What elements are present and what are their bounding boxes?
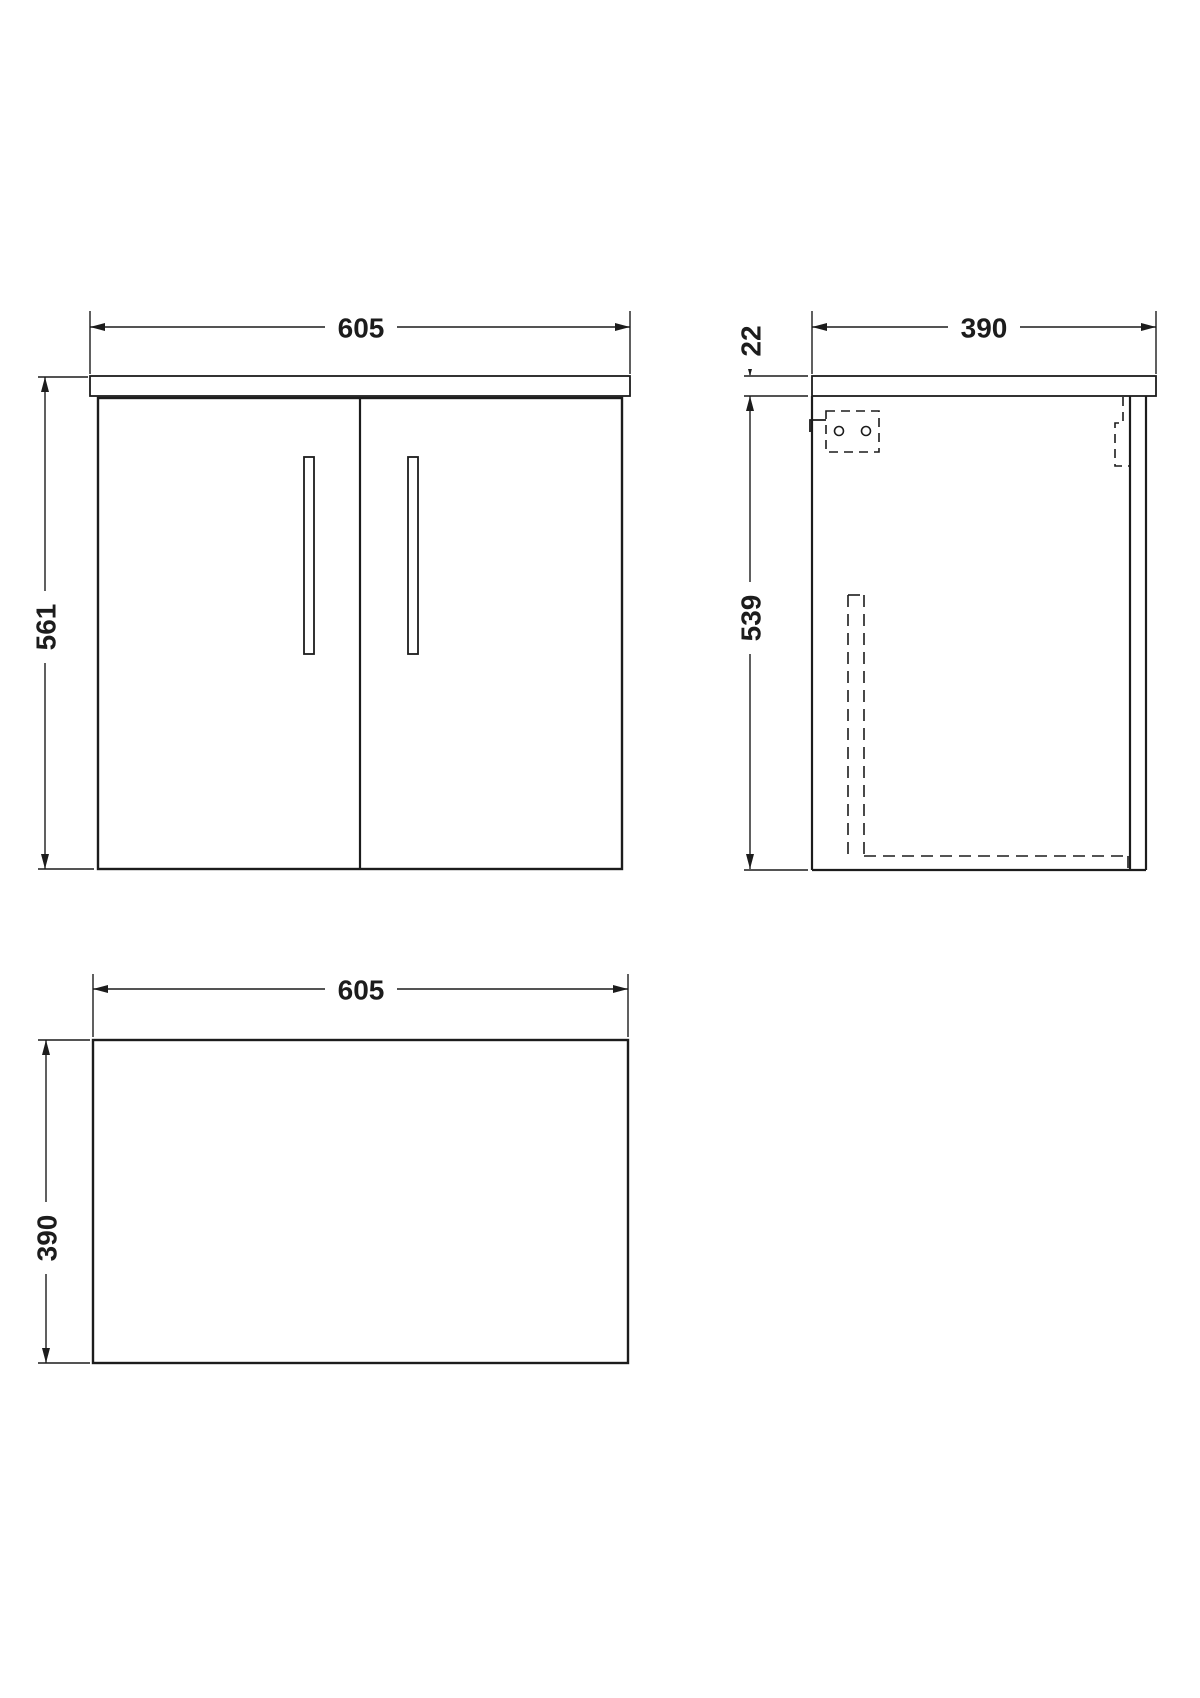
arrowhead-left [90, 323, 105, 331]
wall-mounting-bracket [810, 411, 879, 452]
hidden-internal-panel [848, 595, 1128, 868]
right-door-handle [408, 457, 418, 654]
front-worktop [90, 376, 630, 396]
bracket-screw-hole [835, 427, 844, 436]
side-depth-dimension: 390 [812, 311, 1156, 374]
plan-view: 605 390 [31, 974, 628, 1363]
arrowhead-up [746, 396, 754, 411]
arrowhead-down [42, 1348, 50, 1363]
worktop-thickness-label: 22 [736, 325, 767, 356]
arrowhead-left [93, 985, 108, 993]
plan-depth-label: 390 [32, 1215, 63, 1262]
arrowhead-right [613, 985, 628, 993]
plan-depth-dimension: 390 [31, 1040, 90, 1363]
arrowhead-left [812, 323, 827, 331]
rotated-label-group: 561 [30, 591, 62, 663]
rotated-label-group: 22 [735, 313, 767, 369]
worktop-thickness-dimension: 22 [735, 313, 808, 396]
plan-width-dimension: 605 [93, 974, 628, 1037]
technical-drawing-canvas: 605 561 390 [0, 0, 1200, 1698]
arrowhead-right [615, 323, 630, 331]
rotated-label-group: 539 [735, 582, 767, 654]
arrowhead-up [41, 377, 49, 392]
plan-width-label: 605 [338, 975, 385, 1006]
side-height-label: 539 [736, 595, 767, 642]
side-worktop [812, 376, 1156, 396]
arrowhead-right [1141, 323, 1156, 331]
page: { "canvas": { "background": "#ffffff", "… [0, 0, 1200, 1698]
front-view: 605 561 [30, 311, 630, 869]
arrowhead-down [746, 854, 754, 869]
rotated-label-group: 390 [31, 1202, 63, 1274]
arrowhead-down [41, 854, 49, 869]
front-height-dimension: 561 [30, 377, 94, 869]
left-door-handle [304, 457, 314, 654]
side-view: 390 22 539 [735, 311, 1156, 870]
front-width-dimension: 605 [90, 311, 630, 374]
front-hinge-hidden [1115, 397, 1129, 466]
side-depth-label: 390 [961, 313, 1008, 344]
bracket-screw-hole [862, 427, 871, 436]
front-height-label: 561 [31, 604, 62, 651]
front-width-label: 605 [338, 313, 385, 344]
side-height-dimension: 539 [735, 396, 808, 870]
plan-worktop-outline [93, 1040, 628, 1363]
arrowhead-up [42, 1040, 50, 1055]
